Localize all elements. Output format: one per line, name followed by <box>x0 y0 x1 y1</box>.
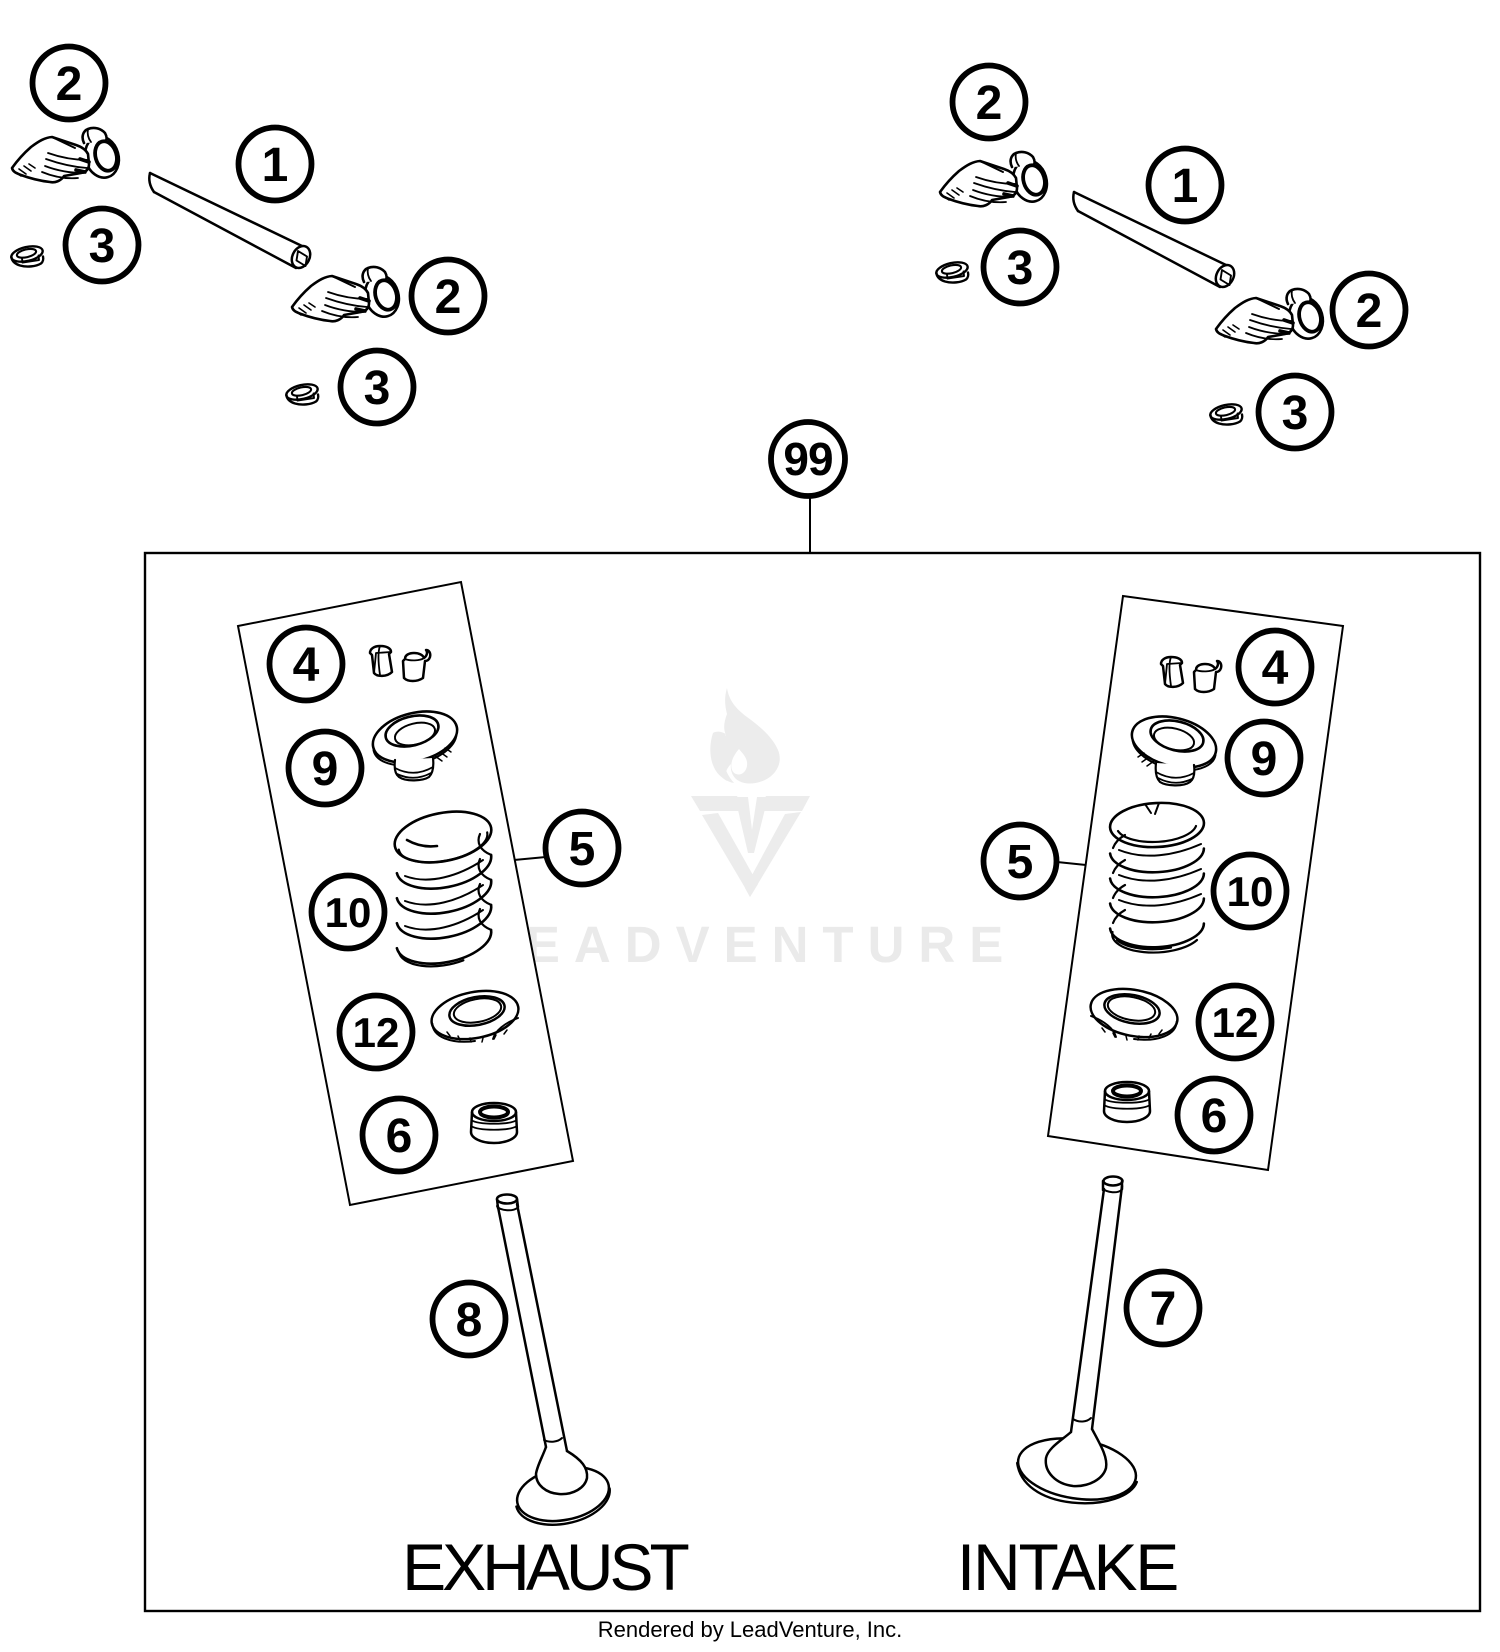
svg-text:12: 12 <box>353 1009 400 1056</box>
svg-text:1: 1 <box>262 139 289 192</box>
svg-text:2: 2 <box>976 77 1003 130</box>
svg-text:7: 7 <box>1150 1283 1177 1336</box>
svg-text:4: 4 <box>293 639 320 692</box>
svg-text:9: 9 <box>312 743 339 796</box>
svg-text:3: 3 <box>1282 387 1309 440</box>
svg-text:10: 10 <box>325 889 372 936</box>
svg-text:8: 8 <box>456 1294 483 1347</box>
svg-text:2: 2 <box>435 271 462 324</box>
svg-text:9: 9 <box>1251 733 1278 786</box>
svg-text:5: 5 <box>1007 836 1034 889</box>
svg-text:12: 12 <box>1212 999 1259 1046</box>
svg-text:LEADVENTURE: LEADVENTURE <box>481 916 1018 973</box>
svg-text:1: 1 <box>1172 160 1199 213</box>
svg-text:99: 99 <box>783 433 832 485</box>
svg-text:6: 6 <box>1201 1090 1228 1143</box>
svg-text:5: 5 <box>569 823 596 876</box>
svg-text:6: 6 <box>386 1110 413 1163</box>
svg-text:EXHAUST: EXHAUST <box>402 1530 688 1604</box>
svg-text:3: 3 <box>1007 242 1034 295</box>
svg-text:3: 3 <box>364 362 391 415</box>
svg-text:2: 2 <box>1356 285 1383 338</box>
svg-text:INTAKE: INTAKE <box>957 1530 1177 1604</box>
svg-text:Rendered by LeadVenture, Inc.: Rendered by LeadVenture, Inc. <box>598 1617 903 1642</box>
svg-text:4: 4 <box>1262 642 1289 695</box>
svg-text:2: 2 <box>56 58 83 111</box>
svg-text:10: 10 <box>1227 868 1274 915</box>
svg-text:3: 3 <box>89 220 116 273</box>
